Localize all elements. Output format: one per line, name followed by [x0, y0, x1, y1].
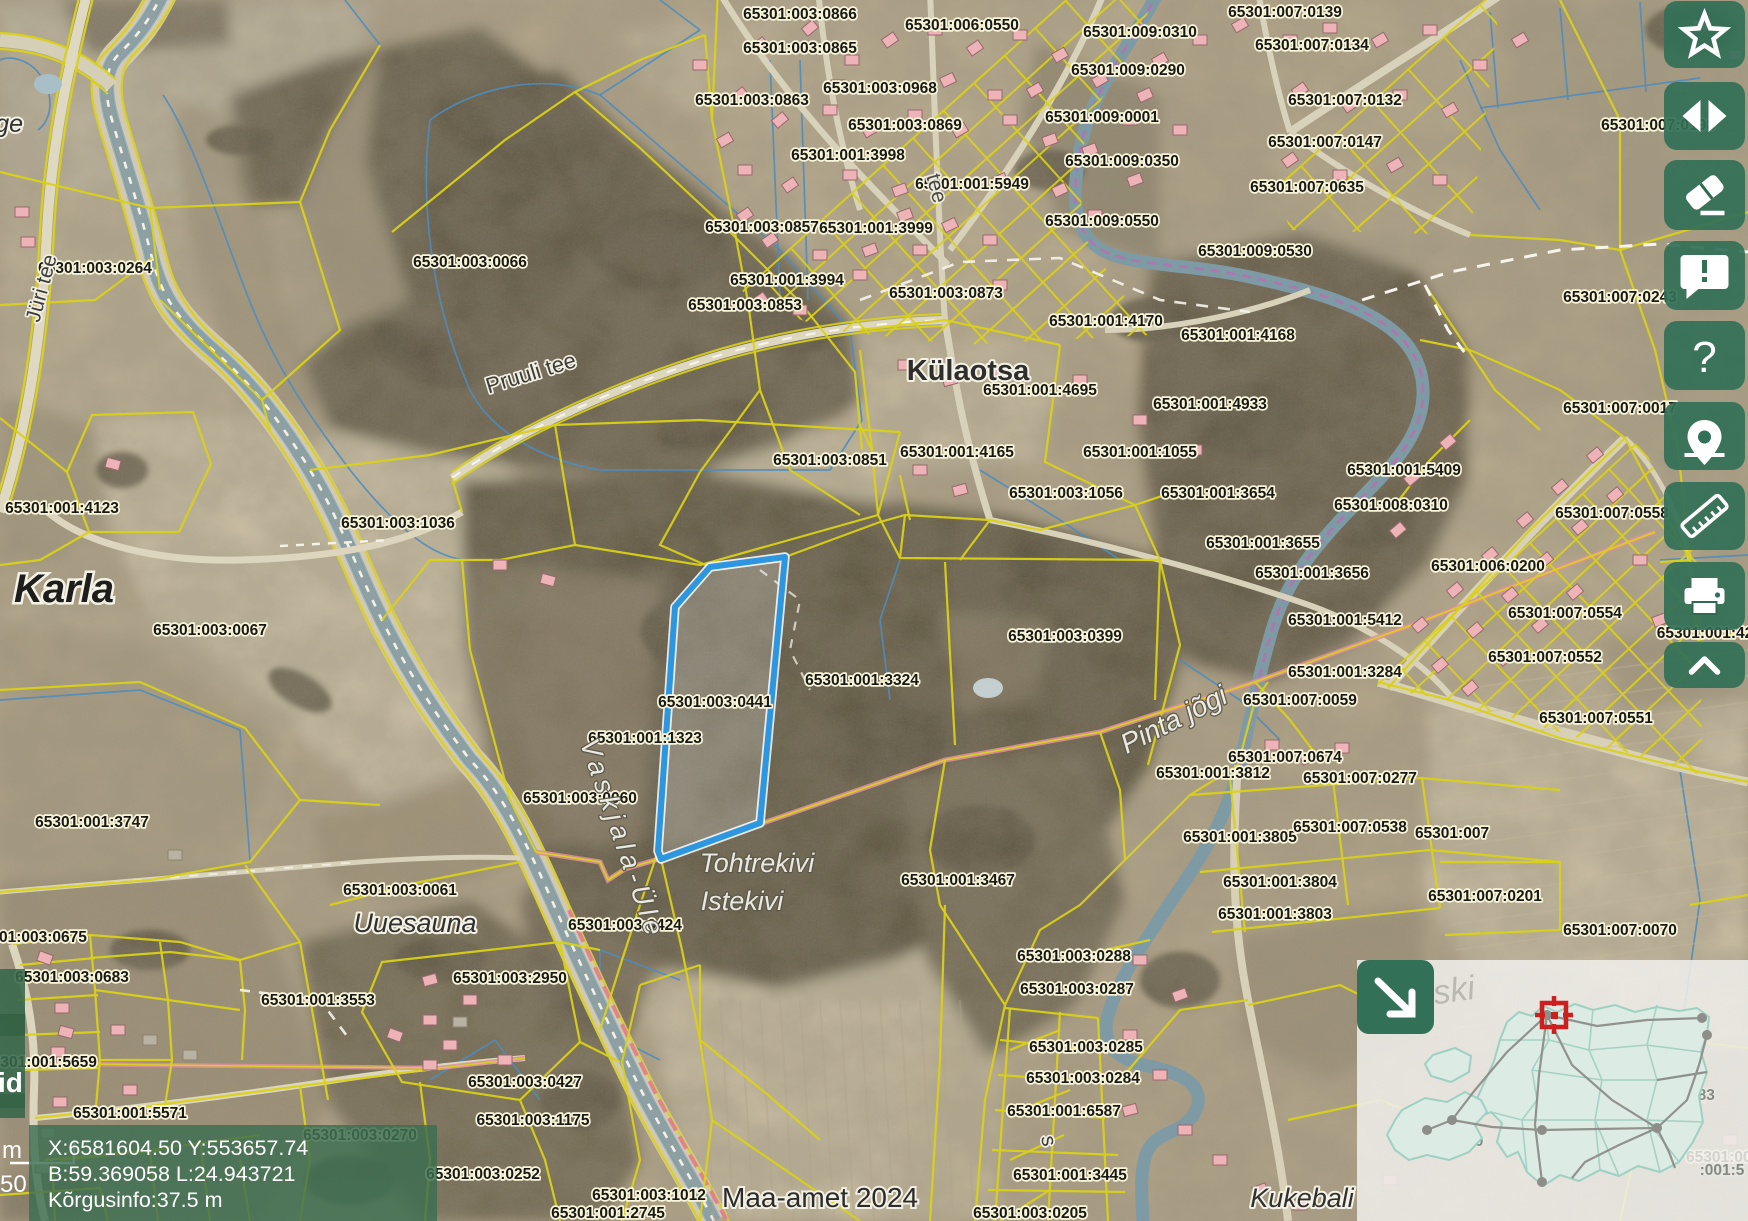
svg-text:65301:007:0674: 65301:007:0674 [1228, 749, 1342, 766]
svg-text:65301:008:0310: 65301:008:0310 [1334, 497, 1448, 514]
svg-text:65301:003:0288: 65301:003:0288 [1017, 948, 1131, 965]
svg-text:65301:003:0968: 65301:003:0968 [823, 80, 937, 97]
svg-text:id: id [0, 1067, 23, 1098]
svg-text:Uuesauna: Uuesauna [353, 908, 476, 938]
svg-text:?: ? [1692, 333, 1716, 382]
svg-text:65301:001:4170: 65301:001:4170 [1049, 313, 1163, 330]
svg-text:65301:006:0200: 65301:006:0200 [1431, 558, 1545, 575]
svg-text:65301:001:4165: 65301:001:4165 [900, 444, 1014, 461]
svg-text:65301:007:0551: 65301:007:0551 [1539, 710, 1653, 727]
svg-text:65301:003:0287: 65301:003:0287 [1020, 981, 1134, 998]
svg-text:65301:003:1012: 65301:003:1012 [592, 1187, 706, 1204]
svg-text:50: 50 [0, 1171, 27, 1198]
svg-text:65301:001:3805: 65301:001:3805 [1183, 829, 1297, 846]
svg-text:65301:007:0070: 65301:007:0070 [1563, 922, 1677, 939]
svg-text:65301:001:4933: 65301:001:4933 [1153, 396, 1267, 413]
svg-text:65301:007:0139: 65301:007:0139 [1228, 4, 1342, 21]
svg-text:65301:001:3812: 65301:001:3812 [1156, 765, 1270, 782]
svg-text:65301:001:3324: 65301:001:3324 [805, 672, 919, 689]
svg-text:65301:001:2745: 65301:001:2745 [551, 1205, 665, 1221]
svg-text:65301:007:0132: 65301:007:0132 [1288, 92, 1402, 109]
svg-text:65301:009:0290: 65301:009:0290 [1071, 62, 1185, 79]
svg-text:65301:003:0865: 65301:003:0865 [743, 40, 857, 57]
svg-text:65301:001:1055: 65301:001:1055 [1083, 444, 1197, 461]
svg-text:65301:003:0675: 65301:003:0675 [0, 929, 87, 946]
svg-text:X:6581604.50 Y:553657.74: X:6581604.50 Y:553657.74 [48, 1136, 308, 1160]
svg-text:65301:007:0017: 65301:007:0017 [1563, 400, 1677, 417]
svg-text:65301:009:0310: 65301:009:0310 [1083, 24, 1197, 41]
svg-text:Tohtrekivi: Tohtrekivi [700, 848, 816, 878]
svg-text:65301:003:1056: 65301:003:1056 [1009, 485, 1123, 502]
svg-text:65301:001:3999: 65301:001:3999 [819, 220, 933, 237]
svg-text:65301:003:0205: 65301:003:0205 [973, 1205, 1087, 1221]
svg-text:65301:001:3553: 65301:001:3553 [261, 992, 375, 1009]
svg-text:65301:003:2950: 65301:003:2950 [453, 970, 567, 987]
svg-text:65301:003:0683: 65301:003:0683 [15, 969, 129, 986]
svg-text:65301:003:0427: 65301:003:0427 [468, 1074, 582, 1091]
svg-text:Istekivi: Istekivi [701, 886, 785, 916]
svg-text:65301:001:3655: 65301:001:3655 [1206, 535, 1320, 552]
svg-text:65301:006:0550: 65301:006:0550 [905, 17, 1019, 34]
svg-text:Külaotsa: Külaotsa [907, 355, 1030, 387]
svg-text:65301:001:3747: 65301:001:3747 [35, 814, 149, 831]
svg-text:Karla: Karla [14, 567, 114, 611]
svg-text:65301:003:0851: 65301:003:0851 [773, 452, 887, 469]
svg-text:65301:001:6587: 65301:001:6587 [1007, 1103, 1121, 1120]
svg-text:65301:003:0252: 65301:003:0252 [426, 1166, 540, 1183]
svg-text:65301:009:0001: 65301:009:0001 [1045, 109, 1159, 126]
svg-text:65301:001:5412: 65301:001:5412 [1288, 612, 1402, 629]
svg-text:65301:007:0243: 65301:007:0243 [1563, 289, 1677, 306]
svg-text:65301:003:0869: 65301:003:0869 [848, 117, 962, 134]
svg-text::001:5: :001:5 [1700, 1162, 1745, 1179]
svg-text:65301:003:1175: 65301:003:1175 [477, 1112, 590, 1129]
svg-text:65301:003:0873: 65301:003:0873 [889, 285, 1003, 302]
svg-text:65301:001:3656: 65301:001:3656 [1255, 565, 1369, 582]
svg-text:Kukebali: Kukebali [1250, 1183, 1355, 1213]
svg-text:65301:001:3284: 65301:001:3284 [1288, 664, 1402, 681]
svg-text:65301:009:0530: 65301:009:0530 [1198, 243, 1312, 260]
svg-text:m: m [2, 1137, 22, 1164]
svg-text:65301:009:0350: 65301:009:0350 [1065, 153, 1179, 170]
svg-text:65301:003:0857: 65301:003:0857 [705, 219, 819, 236]
svg-text:65301:003:0441: 65301:003:0441 [658, 694, 772, 711]
svg-text:65301:001:3804: 65301:001:3804 [1223, 874, 1337, 891]
svg-text:65301:003:0067: 65301:003:0067 [153, 622, 267, 639]
svg-text:65301:001:3994: 65301:001:3994 [730, 272, 844, 289]
svg-text:65301:003:0863: 65301:003:0863 [695, 92, 809, 109]
svg-text:65301:003:0866: 65301:003:0866 [743, 6, 857, 23]
svg-text:Kõrgusinfo:37.5 m: Kõrgusinfo:37.5 m [48, 1188, 223, 1212]
svg-text:65301:007:0147: 65301:007:0147 [1268, 134, 1382, 151]
svg-text:65301:003:0285: 65301:003:0285 [1029, 1039, 1143, 1056]
svg-text:65301:009:0550: 65301:009:0550 [1045, 213, 1159, 230]
svg-text:65301:007:0277: 65301:007:0277 [1303, 770, 1417, 787]
svg-text:65301:007:0552: 65301:007:0552 [1488, 649, 1602, 666]
svg-text:rge: rge [0, 110, 23, 138]
svg-text:65301:001:4168: 65301:001:4168 [1181, 327, 1295, 344]
svg-text:Maa-amet 2024: Maa-amet 2024 [722, 1182, 918, 1213]
svg-text:65301:003:0853: 65301:003:0853 [688, 297, 802, 314]
svg-text:65301:007:0059: 65301:007:0059 [1243, 692, 1357, 709]
svg-text:65301:003:0061: 65301:003:0061 [343, 882, 457, 899]
svg-text:65301:007:0201: 65301:007:0201 [1428, 888, 1542, 905]
svg-text:65301:003:0399: 65301:003:0399 [1008, 628, 1122, 645]
svg-text:65301:001:3998: 65301:001:3998 [791, 147, 905, 164]
svg-text:65301:007: 65301:007 [1415, 825, 1489, 842]
svg-text:65301:003:1036: 65301:003:1036 [341, 515, 455, 532]
svg-text:65301:003:0284: 65301:003:0284 [1026, 1070, 1140, 1087]
svg-text:65301:001:3467: 65301:001:3467 [901, 872, 1015, 889]
svg-text:65301:001:4123: 65301:001:4123 [5, 500, 119, 517]
svg-text:65301:007:0538: 65301:007:0538 [1293, 819, 1407, 836]
svg-text:65301:001:3654: 65301:001:3654 [1161, 485, 1275, 502]
svg-text:65301:007:0554: 65301:007:0554 [1508, 605, 1622, 622]
svg-text:65301:003:0066: 65301:003:0066 [413, 254, 527, 271]
svg-text:65301:001:5571: 65301:001:5571 [73, 1105, 187, 1122]
svg-text:65301:001:3445: 65301:001:3445 [1013, 1167, 1127, 1184]
svg-text:B:59.369058 L:24.943721: B:59.369058 L:24.943721 [48, 1162, 295, 1186]
svg-text:65301:001:5409: 65301:001:5409 [1347, 462, 1461, 479]
svg-text:65301:007:0635: 65301:007:0635 [1250, 179, 1364, 196]
svg-text:65301:007:0134: 65301:007:0134 [1255, 37, 1369, 54]
svg-text:65301:001:3803: 65301:001:3803 [1218, 906, 1332, 923]
svg-text:65301:007:0558: 65301:007:0558 [1555, 505, 1669, 522]
